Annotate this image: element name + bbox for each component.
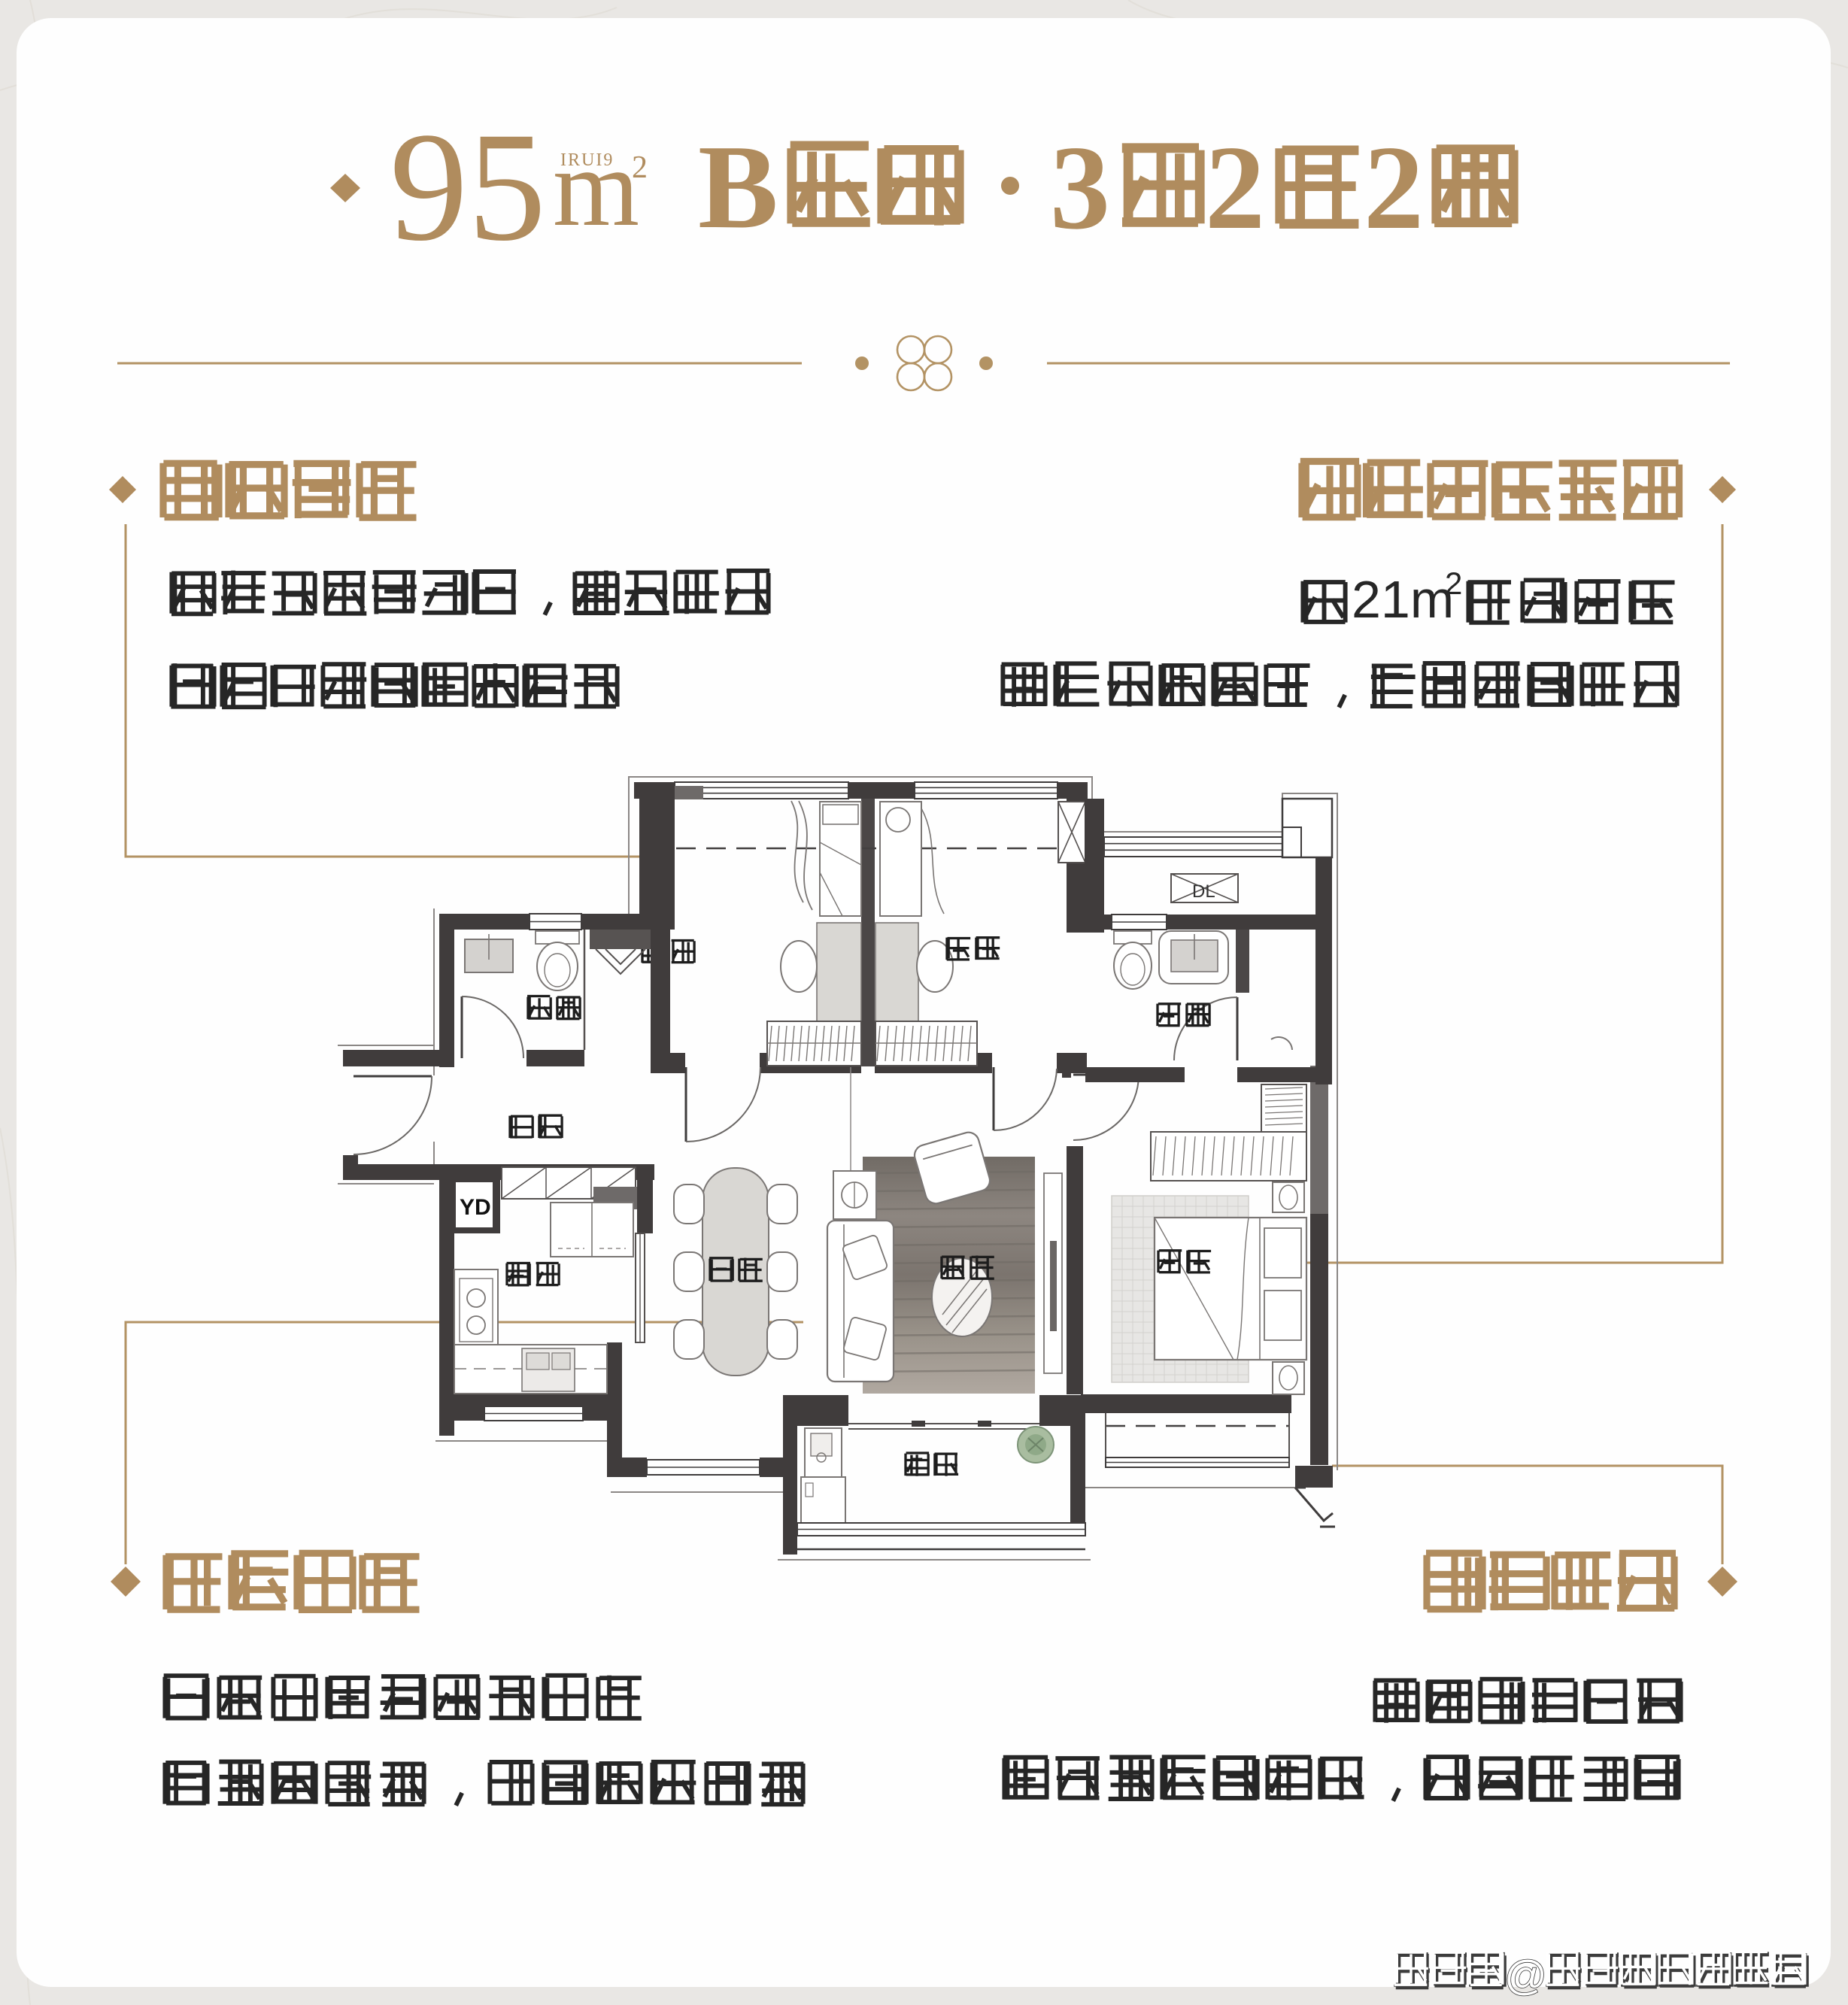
svg-text:@: @ (1504, 1952, 1547, 1999)
svg-text:m: m (553, 126, 639, 250)
svg-text:2: 2 (1445, 566, 1462, 601)
svg-text:3: 3 (1050, 120, 1110, 254)
svg-text:21m: 21m (1352, 570, 1454, 629)
svg-text:2: 2 (1205, 120, 1265, 254)
svg-text:2: 2 (632, 150, 648, 185)
svg-text:B: B (698, 120, 778, 253)
svg-text:DL: DL (1192, 881, 1215, 902)
svg-text:95: 95 (390, 100, 546, 273)
svg-text:YD: YD (460, 1195, 491, 1220)
svg-text:2: 2 (1364, 120, 1424, 254)
